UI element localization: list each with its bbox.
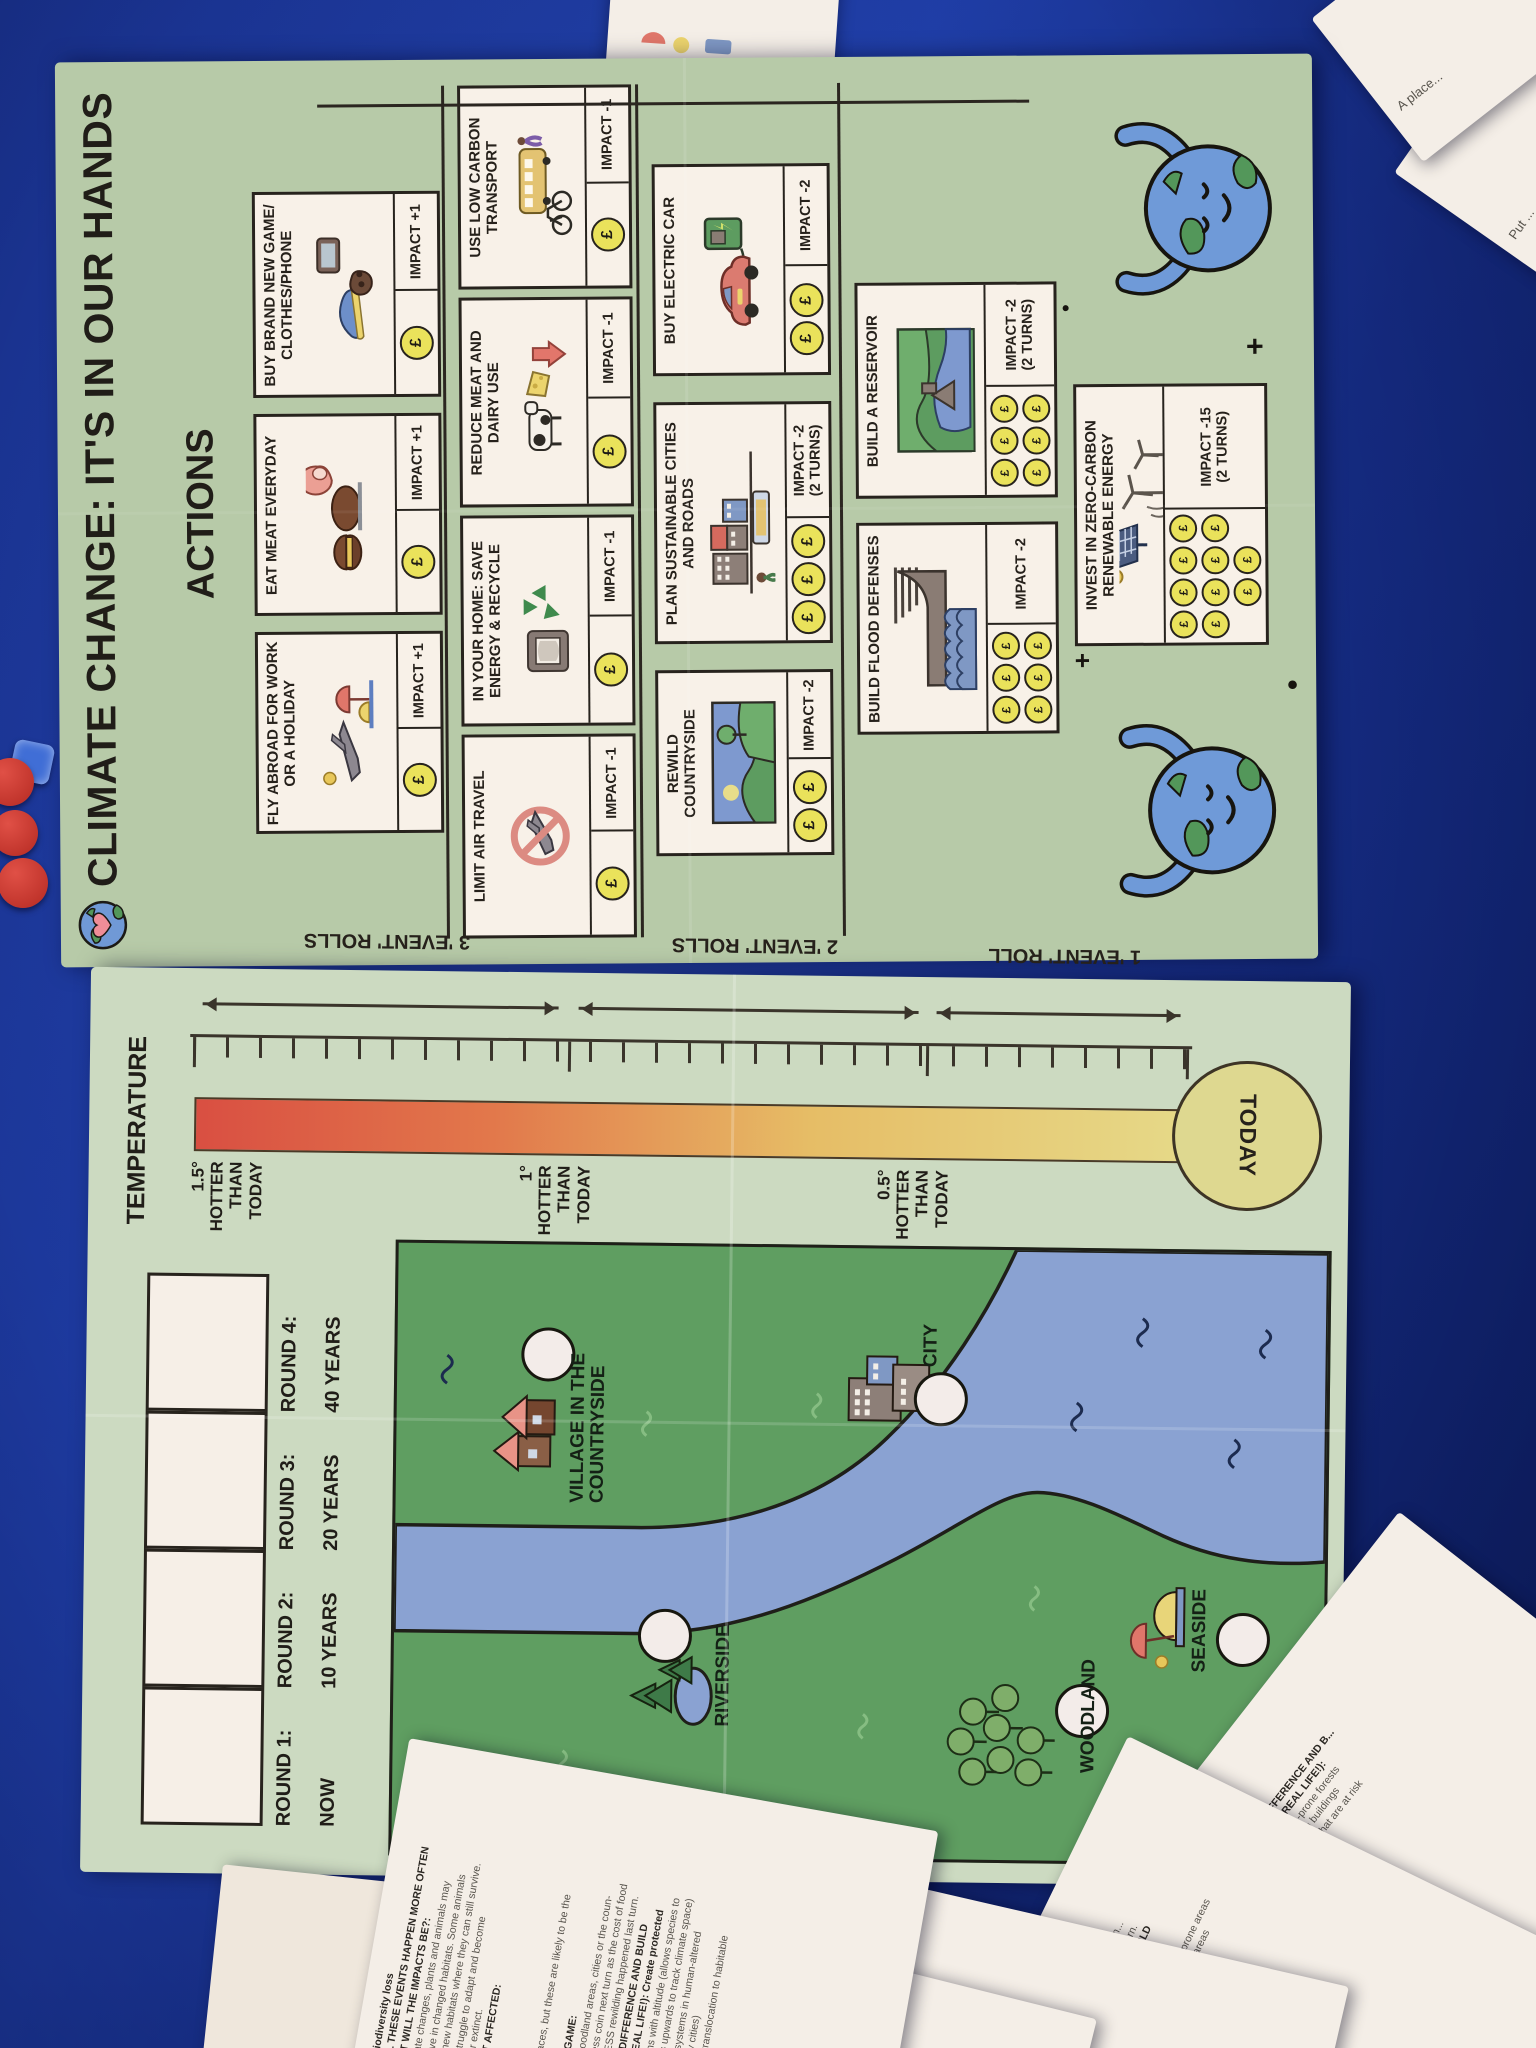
zone-2-arrow	[579, 1007, 919, 1014]
action-card-build-flood-defenses[interactable]: BUILD FLOOD DEFENSES	[856, 522, 1059, 735]
plane-holiday-icon	[300, 635, 397, 832]
pound-coin-icon: £	[592, 434, 626, 468]
sparkle-icon: ●	[1057, 304, 1073, 313]
village-houses-icon	[494, 1396, 555, 1471]
zone-3-label: 3 'EVENT' ROLLS	[304, 928, 470, 953]
pound-coin-icon: £	[991, 459, 1019, 487]
action-card-buy-electric-car[interactable]: BUY ELECTRIC CAR ££ IMPACT	[652, 163, 831, 376]
pound-coin-icon: £	[401, 545, 435, 579]
card-title: BUILD FLOOD DEFENSES	[859, 526, 886, 732]
pound-coin-icon: £	[992, 632, 1020, 660]
card-title: BUILD A RESERVOIR	[857, 286, 884, 496]
temp-label-1-5: 1.5°HOTTER THANTODAY	[188, 1161, 266, 1232]
actions-subtitle: ACTIONS	[177, 61, 226, 966]
impact-label: IMPACT -15(2 TURNS)	[1164, 386, 1265, 510]
pound-coin-icon: £	[403, 763, 437, 797]
woodland-label: WOODLAND	[1078, 1659, 1099, 1773]
sparkle-icon: ●	[1281, 679, 1304, 691]
pound-coin-icon: £	[791, 524, 825, 558]
cost-coins: £££	[787, 518, 830, 641]
zone-3-arrow	[203, 1003, 559, 1010]
pound-coin-icon: £	[1170, 610, 1198, 638]
cost-coins: £	[395, 291, 438, 395]
temp-label-1: 1°HOTTER THANTODAY	[516, 1165, 594, 1236]
cost-coins: £	[587, 183, 630, 286]
cost-coins: ££	[785, 266, 828, 373]
card-title: IN YOUR HOME: SAVE ENERGY & RECYCLE	[463, 519, 506, 724]
event-card-text: EVENT: Biodiversity lossWHY WILL THESE E…	[363, 1755, 767, 2048]
tabletop-photo: CLIMATE CHANGE: IT'S IN OUR HANDS ACTION…	[0, 0, 1536, 2048]
pound-coin-icon: £	[793, 770, 827, 804]
zone-2-label: 2 'EVENT' ROLLS	[672, 932, 838, 957]
card-title: REWILD COUNTRYSIDE	[658, 673, 701, 853]
action-card-low-carbon-transport[interactable]: USE LOW CARBON TRANSPORT	[457, 84, 632, 289]
cost-coins: £	[588, 398, 631, 504]
pound-coin-icon: £	[1022, 395, 1050, 423]
pound-coin-icon: £	[591, 217, 625, 251]
cost-coins: £	[397, 511, 440, 613]
cost-coins: ££	[789, 759, 832, 852]
pound-coin-icon: £	[990, 427, 1018, 455]
pound-coin-icon: £	[1024, 632, 1052, 660]
pound-coin-icon: £	[1201, 578, 1229, 606]
solar-wind-icon	[1118, 387, 1164, 643]
pound-coin-icon: £	[1024, 696, 1052, 724]
round-1-box[interactable]	[141, 1687, 265, 1826]
impact-label: IMPACT -2	[788, 673, 831, 760]
round-1-label: ROUND 1:	[273, 1729, 297, 1826]
actions-row-2: LIMIT AIR TRAVEL £ IMPACT -1 IN YOUR HOM…	[457, 84, 637, 938]
village-label: VILLAGE IN THECOUNTRYSIDE	[568, 1353, 610, 1503]
round-1-when: NOW	[317, 1778, 341, 1827]
no-plane-icon	[490, 736, 590, 935]
map-board: TEMPERATURE ROUND 1: ROUND 2: ROUND 3: R…	[80, 967, 1351, 1887]
action-card-buy-brand-new[interactable]: BUY BRAND NEW GAME/ CLOTHES/PHONE £ IMPA…	[252, 191, 441, 398]
pound-coin-icon: £	[789, 283, 823, 317]
red-token[interactable]	[0, 858, 48, 908]
round-3-label: ROUND 3:	[276, 1453, 300, 1550]
round-2-label: ROUND 2:	[274, 1591, 298, 1688]
zone-1-arrow	[937, 1012, 1181, 1017]
seaside-label: SEASIDE	[1190, 1589, 1211, 1673]
red-token[interactable]	[0, 810, 38, 856]
impact-label: IMPACT -1	[591, 736, 634, 832]
pound-coin-icon: £	[1201, 514, 1229, 542]
temperature-title: TEMPERATURE	[122, 1036, 153, 1225]
card-title: BUY ELECTRIC CAR	[655, 168, 682, 374]
city-tram-icon	[698, 405, 786, 642]
meat-icon	[282, 417, 396, 614]
pound-coin-icon: £	[791, 562, 825, 596]
sparkle-icon: +	[1239, 337, 1273, 355]
divider	[837, 83, 846, 936]
pound-coin-icon: £	[595, 866, 629, 900]
action-card-plan-sustainable-cities[interactable]: PLAN SUSTAINABLE CITIES AND ROADS	[653, 401, 833, 644]
divider	[635, 84, 644, 937]
pound-coin-icon: £	[594, 652, 628, 686]
cost-coins: £	[591, 832, 634, 935]
earth-character-left	[1071, 695, 1308, 927]
pound-coin-icon: £	[792, 600, 826, 634]
round-2-box[interactable]	[142, 1549, 266, 1688]
actions-row-1: FLY ABROAD FOR WORK OR A HOLIDAY £ IMPAC	[251, 86, 445, 940]
reservoir-icon	[883, 285, 985, 496]
flood-wall-icon	[885, 525, 987, 732]
action-card-fly-abroad[interactable]: FLY ABROAD FOR WORK OR A HOLIDAY £ IMPAC	[255, 631, 444, 834]
impact-label: IMPACT -1	[588, 300, 631, 399]
round-3-box[interactable]	[144, 1411, 268, 1550]
pound-coin-icon: £	[992, 696, 1020, 724]
action-card-build-a-reservoir[interactable]: BUILD A RESERVOIR ££££££ IMPACT -2(2 TUR…	[854, 282, 1058, 499]
electric-car-icon	[680, 167, 784, 374]
board-title: CLIMATE CHANGE: IT'S IN OUR HANDS	[74, 92, 127, 888]
round-4-box[interactable]	[146, 1273, 270, 1412]
today-label: TODAY	[1233, 1094, 1261, 1177]
card-title: BUY BRAND NEW GAME/ CLOTHES/PHONE	[255, 195, 298, 395]
impact-label: IMPACT -2(2 TURNS)	[985, 285, 1054, 387]
zone-1-label: 1 'EVENT' ROLL	[988, 943, 1141, 968]
earth-character-right	[1067, 93, 1304, 325]
pound-coin-icon: £	[990, 395, 1018, 423]
board-header: CLIMATE CHANGE: IT'S IN OUR HANDS	[71, 72, 129, 951]
pound-coin-icon: £	[992, 664, 1020, 692]
action-card-eat-meat[interactable]: EAT MEAT EVERYDAY £ IMPACT +1	[253, 413, 442, 616]
pound-coin-icon: £	[1024, 664, 1052, 692]
impact-label: IMPACT -2(2 TURNS)	[786, 405, 829, 519]
round-4-when: 40 YEARS	[322, 1316, 346, 1413]
woodland-trees-icon	[947, 1684, 1055, 1785]
sparkle-icon: +	[1067, 653, 1098, 668]
seaside-umbrella-icon	[1131, 1588, 1185, 1669]
action-card-limit-air-travel[interactable]: LIMIT AIR TRAVEL £ IMPACT -1	[462, 733, 637, 938]
pound-coin-icon: £	[1023, 459, 1051, 487]
pound-coin-icon: £	[1169, 578, 1197, 606]
pound-coin-icon: £	[1202, 610, 1230, 638]
bus-bike-icon	[502, 88, 585, 287]
card-title: INVEST IN ZERO-CARBON RENEWABLE ENERGY	[1076, 387, 1120, 643]
city-label: CITY	[921, 1324, 941, 1368]
shopping-icon	[297, 195, 394, 396]
round-4-label: ROUND 4:	[278, 1315, 302, 1412]
pound-coin-icon: £	[400, 325, 434, 359]
impact-label: IMPACT -2	[785, 167, 828, 267]
action-card-invest-renewables[interactable]: INVEST IN ZERO-CARBON RENEWABLE ENERGY	[1073, 383, 1269, 646]
card-title: PLAN SUSTAINABLE CITIES AND ROADS	[656, 405, 700, 641]
today-bulb: TODAY	[1171, 1060, 1323, 1212]
recycle-icon	[505, 518, 588, 723]
pound-coin-icon: £	[793, 808, 827, 842]
pound-coin-icon: £	[1022, 427, 1050, 455]
card-title: REDUCE MEAT AND DAIRY USE	[462, 301, 505, 506]
landscape-icon	[700, 673, 787, 854]
card-title: FLY ABROAD FOR WORK OR A HOLIDAY	[258, 635, 301, 831]
impact-label: IMPACT -2	[987, 525, 1056, 625]
pound-coin-icon: £	[1233, 578, 1261, 606]
riverside-label: RIVERSIDE	[713, 1624, 734, 1727]
pound-coin-icon: £	[1233, 546, 1261, 574]
action-card-home-energy-recycle[interactable]: IN YOUR HOME: SAVE ENERGY & RECYCLE £ IM…	[460, 515, 635, 726]
round-2-when: 10 YEARS	[318, 1592, 342, 1689]
actions-row-3: REWILD COUNTRYSIDE ££ IMPACT -2	[651, 83, 835, 937]
pound-coin-icon: £	[1201, 546, 1229, 574]
impact-label: IMPACT +1	[395, 194, 438, 291]
temperature-gradient-bar	[194, 1097, 1189, 1163]
cost-coins: £	[590, 616, 633, 722]
cow-icon	[504, 300, 587, 505]
cost-coins: ££££££	[988, 624, 1057, 731]
card-text-line: ...sts in buildings	[1285, 1594, 1493, 1854]
actions-board: CLIMATE CHANGE: IT'S IN OUR HANDS ACTION…	[55, 54, 1318, 968]
impact-label: IMPACT +1	[396, 416, 439, 511]
pound-coin-icon: £	[1169, 514, 1197, 542]
round-3-when: 20 YEARS	[320, 1454, 344, 1551]
action-card-reduce-meat-dairy[interactable]: REDUCE MEAT AND DAIRY USE £	[459, 297, 634, 508]
card-title: USE LOW CARBON TRANSPORT	[460, 88, 503, 287]
pound-coin-icon: £	[1169, 546, 1197, 574]
card-title: EAT MEAT EVERYDAY	[256, 417, 283, 613]
card-title: LIMIT AIR TRAVEL	[465, 737, 492, 935]
cost-coins: ££££££	[986, 386, 1055, 495]
action-card-rewild-countryside[interactable]: REWILD COUNTRYSIDE ££ IMPACT -2	[655, 669, 834, 856]
pound-coin-icon: £	[790, 321, 824, 355]
cost-coins: ££££££££££	[1165, 509, 1266, 643]
impact-label: IMPACT -1	[589, 518, 632, 617]
temp-label-0-5: 0.5°HOTTER THANTODAY	[874, 1169, 952, 1240]
impact-label: IMPACT +1	[398, 634, 441, 729]
cost-coins: £	[399, 729, 442, 831]
earth-heart-logo-icon	[77, 899, 129, 951]
actions-row-4: BUILD FLOOD DEFENSES	[853, 81, 1061, 935]
